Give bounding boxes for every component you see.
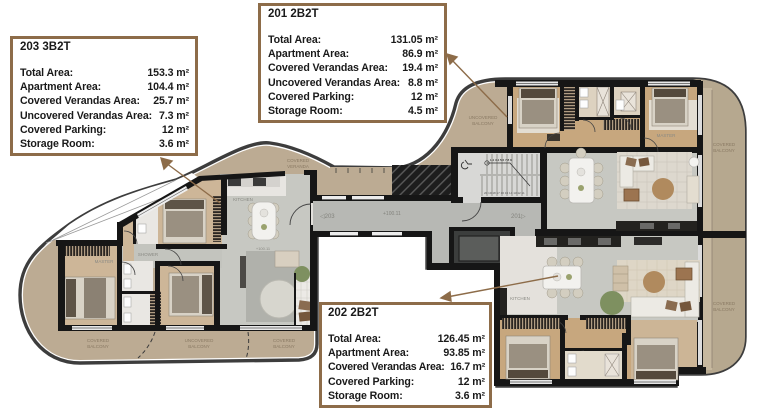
svg-text:BALCONY: BALCONY xyxy=(472,121,494,126)
svg-text:20 19 18 17 16 15 14 13 12 11: 20 19 18 17 16 15 14 13 12 11 xyxy=(484,191,525,195)
svg-text:MASTER: MASTER xyxy=(95,259,115,264)
svg-text:SHOWER: SHOWER xyxy=(138,252,159,257)
svg-text:VERANDA: VERANDA xyxy=(287,164,309,169)
svg-text:BALCONY: BALCONY xyxy=(713,307,735,312)
svg-text:1 2 3 4 5 6 7 8 9: 1 2 3 4 5 6 7 8 9 xyxy=(490,158,512,162)
svg-text:UNCOVERED: UNCOVERED xyxy=(469,115,499,120)
svg-text:COVERED: COVERED xyxy=(713,142,736,147)
svg-text:BALCONY: BALCONY xyxy=(87,344,109,349)
svg-text:MASTER: MASTER xyxy=(657,133,677,138)
svg-text:201▷: 201▷ xyxy=(511,214,526,220)
svg-text:+100.11: +100.11 xyxy=(383,211,401,217)
svg-text:COVERED: COVERED xyxy=(87,338,110,343)
svg-text:+100.11: +100.11 xyxy=(256,246,271,251)
svg-text:KITCHEN: KITCHEN xyxy=(233,197,253,202)
svg-text:COVERED: COVERED xyxy=(287,158,310,163)
svg-text:UNCOVERED: UNCOVERED xyxy=(185,338,215,343)
svg-text:BALCONY: BALCONY xyxy=(713,148,735,153)
svg-text:COVERED: COVERED xyxy=(713,301,736,306)
svg-text:◁203: ◁203 xyxy=(320,214,335,220)
svg-text:COVERED: COVERED xyxy=(273,338,296,343)
svg-text:BALCONY: BALCONY xyxy=(188,344,210,349)
svg-text:KITCHEN: KITCHEN xyxy=(510,296,530,301)
svg-text:BALCONY: BALCONY xyxy=(273,344,295,349)
